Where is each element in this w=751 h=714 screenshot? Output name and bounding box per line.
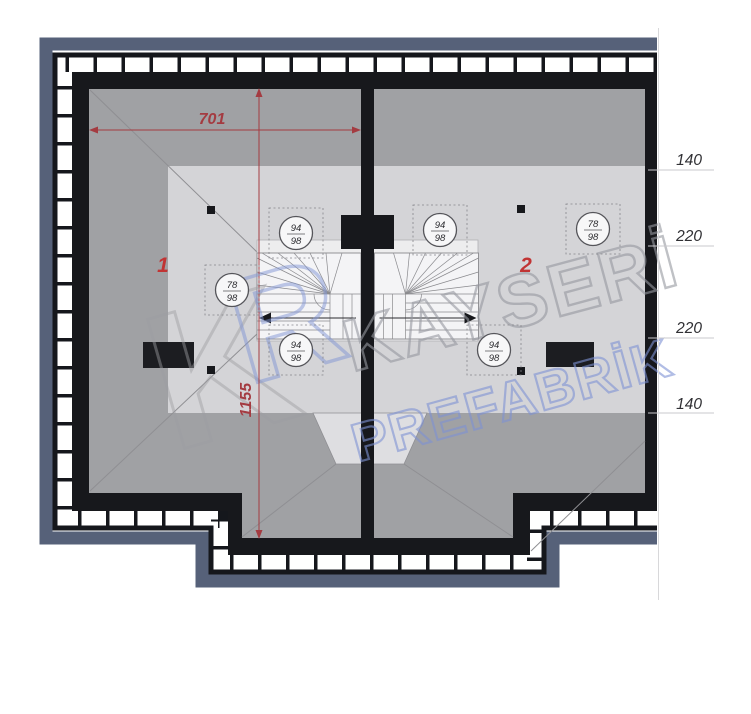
right-dim-label-4: 140 (676, 396, 702, 413)
floor-plan-canvas: K R KAYSERİ PREFABRİK 701 1155 140 220 2… (0, 0, 751, 714)
dimension-width-label: 701 (199, 111, 226, 128)
marker-top-value: 78 (227, 280, 238, 291)
marker-top-value: 94 (435, 220, 446, 231)
right-dim-label-2: 220 (675, 228, 702, 245)
marker-top-value: 94 (291, 340, 302, 351)
marker-bottom-value: 98 (588, 232, 599, 243)
right-dim-label-3: 220 (675, 320, 702, 337)
unit1-number: 1 (157, 254, 169, 277)
marker-bottom-value: 98 (435, 233, 446, 244)
marker-bottom-value: 98 (227, 293, 238, 304)
party-wall-chimney (341, 215, 394, 249)
marker-top-value: 78 (588, 219, 599, 230)
dimension-height-label: 1155 (238, 382, 255, 418)
marker-bottom-value: 98 (489, 353, 500, 364)
marker-top-value: 94 (291, 223, 302, 234)
floor-plan-page: K R KAYSERİ PREFABRİK 701 1155 140 220 2… (0, 0, 751, 714)
marker-bottom-value: 98 (291, 236, 302, 247)
right-dim-label-1: 140 (676, 152, 702, 169)
marker-top-value: 94 (489, 340, 500, 351)
unit2-number: 2 (519, 254, 532, 277)
marker-bottom-value: 98 (291, 353, 302, 364)
